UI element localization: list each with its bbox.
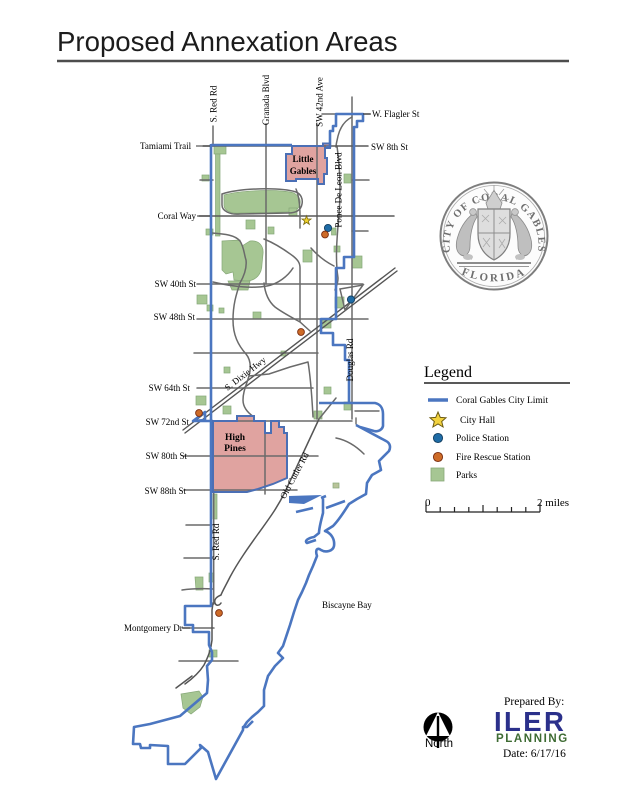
svg-text:SW 42nd Ave: SW 42nd Ave — [315, 77, 325, 127]
svg-text:SW 80th St: SW 80th St — [146, 451, 188, 461]
svg-text:Douglas Rd: Douglas Rd — [345, 338, 355, 381]
svg-text:Proposed Annexation Areas: Proposed Annexation Areas — [57, 26, 398, 57]
svg-text:S. Red Rd: S. Red Rd — [211, 523, 221, 560]
svg-text:2 miles: 2 miles — [537, 497, 569, 509]
svg-text:High: High — [225, 433, 246, 443]
svg-text:Little: Little — [293, 154, 314, 164]
svg-text:Police Station: Police Station — [456, 434, 509, 444]
svg-text:Ponce De Leon Blvd: Ponce De Leon Blvd — [334, 152, 344, 228]
svg-text:PLANNING: PLANNING — [496, 733, 569, 745]
svg-text:SW 88th St: SW 88th St — [145, 486, 187, 496]
svg-text:W. Flagler St: W. Flagler St — [372, 109, 420, 119]
svg-text:SW 48th St: SW 48th St — [154, 312, 196, 322]
svg-text:SW 8th St: SW 8th St — [371, 142, 408, 152]
svg-text:Biscayne Bay: Biscayne Bay — [322, 600, 372, 610]
svg-text:Parks: Parks — [456, 471, 477, 481]
svg-text:Fire Rescue Station: Fire Rescue Station — [456, 453, 531, 463]
svg-text:Coral Gables City Limit: Coral Gables City Limit — [456, 396, 548, 406]
svg-text:Tamiami Trail: Tamiami Trail — [140, 141, 192, 151]
svg-text:Legend: Legend — [424, 364, 472, 381]
svg-text:City Hall: City Hall — [460, 416, 495, 426]
svg-text:North: North — [425, 738, 453, 750]
svg-text:SW 40th St: SW 40th St — [155, 279, 197, 289]
svg-text:Montgomery Dr: Montgomery Dr — [124, 623, 183, 633]
svg-text:S. Red Rd: S. Red Rd — [209, 85, 219, 122]
svg-text:Granada Blvd: Granada Blvd — [261, 74, 271, 125]
svg-text:Coral Way: Coral Way — [158, 211, 197, 221]
svg-text:Date: 6/17/16: Date: 6/17/16 — [503, 748, 566, 760]
svg-text:SW 64th St: SW 64th St — [149, 383, 191, 393]
svg-text:SW 72nd St: SW 72nd St — [146, 417, 190, 427]
svg-text:Pines: Pines — [224, 444, 246, 454]
svg-text:Gables: Gables — [290, 166, 317, 176]
